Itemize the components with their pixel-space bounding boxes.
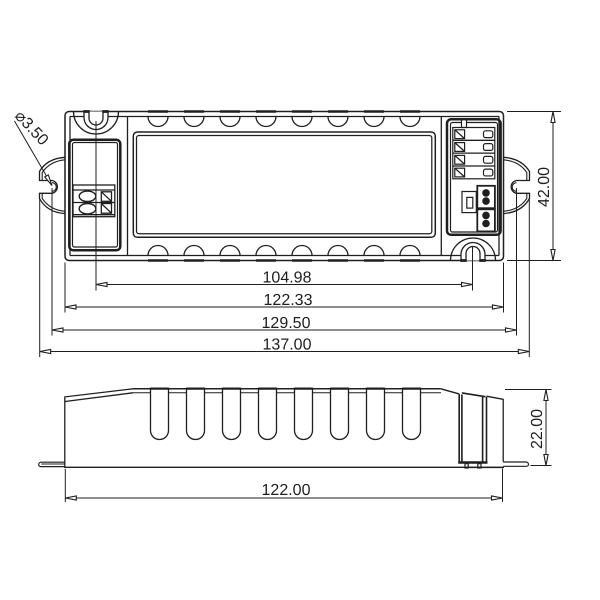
svg-text:104.98: 104.98 (263, 270, 312, 287)
svg-text:42.00: 42.00 (536, 167, 553, 207)
svg-text:129.50: 129.50 (262, 315, 311, 332)
svg-text:22.00: 22.00 (529, 409, 546, 449)
svg-text:122.33: 122.33 (264, 292, 313, 309)
svg-text:137.00: 137.00 (263, 337, 312, 354)
svg-text:122.00: 122.00 (262, 482, 311, 499)
svg-text:⌀3.50: ⌀3.50 (11, 108, 51, 149)
